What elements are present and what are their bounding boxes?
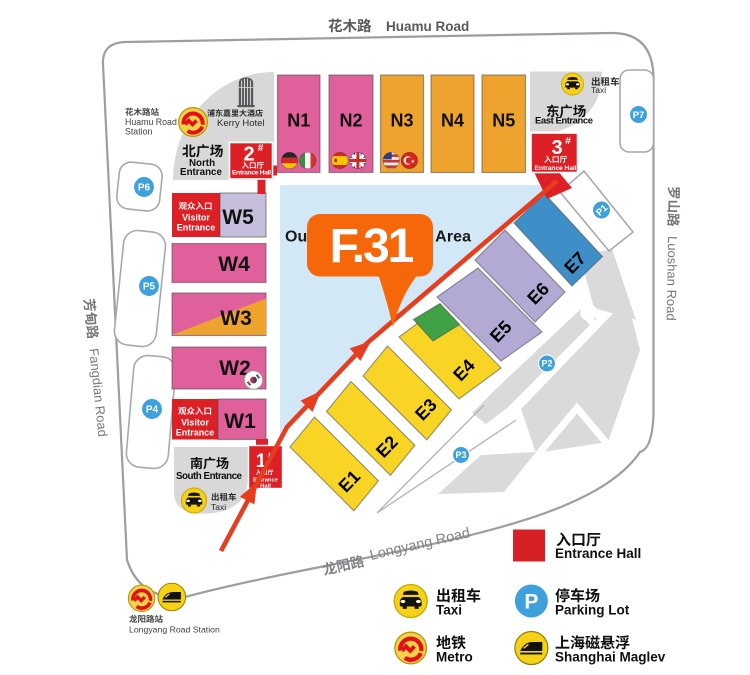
svg-text:South Entrance: South Entrance [176, 471, 243, 482]
svg-text:Hall: Hall [260, 484, 271, 490]
svg-text:P4: P4 [146, 405, 159, 416]
svg-text:Longyang Road Station: Longyang Road Station [129, 625, 220, 635]
svg-text:#: # [565, 136, 571, 147]
svg-text:Taxi: Taxi [211, 502, 226, 512]
svg-text:Luoshan Road: Luoshan Road [664, 236, 680, 321]
svg-text:F.31: F.31 [330, 220, 414, 273]
svg-text:W5: W5 [222, 206, 254, 229]
svg-text:Kerry Hotel: Kerry Hotel [217, 118, 265, 129]
svg-text:P2: P2 [541, 359, 552, 369]
svg-text:Taxi: Taxi [591, 85, 606, 95]
svg-text:2: 2 [243, 144, 254, 166]
svg-text:W3: W3 [220, 307, 252, 330]
svg-text:W4: W4 [218, 253, 250, 276]
svg-text:#: # [258, 143, 264, 154]
svg-text:Entrance Hall: Entrance Hall [232, 170, 271, 177]
svg-text:Shanghai Maglev: Shanghai Maglev [555, 650, 666, 665]
svg-text:N1: N1 [287, 111, 310, 131]
svg-text:Metro: Metro [436, 650, 473, 665]
svg-text:N5: N5 [492, 111, 515, 131]
svg-text:P6: P6 [138, 183, 151, 194]
svg-text:N4: N4 [441, 111, 464, 131]
svg-text:Huamu Road: Huamu Road [386, 19, 469, 34]
svg-text:Entrance Hall: Entrance Hall [555, 546, 641, 561]
svg-text:Visitor: Visitor [181, 418, 209, 428]
svg-text:Fangdian Road: Fangdian Road [86, 347, 110, 437]
svg-text:Entrance: Entrance [177, 223, 216, 233]
svg-text:Visitor: Visitor [182, 213, 210, 223]
svg-text:Entrance: Entrance [180, 167, 222, 178]
svg-text:P: P [524, 591, 538, 614]
svg-text:Entrance Hall: Entrance Hall [535, 165, 577, 172]
svg-text:P3: P3 [455, 450, 466, 460]
svg-text:P7: P7 [633, 110, 645, 121]
svg-text:Parking Lot: Parking Lot [555, 603, 630, 618]
svg-text:Huamu Road: Huamu Road [125, 117, 177, 127]
svg-text:N3: N3 [390, 111, 413, 131]
svg-text:P5: P5 [143, 282, 156, 293]
svg-text:3: 3 [551, 137, 562, 159]
svg-text:Station: Station [125, 127, 152, 137]
svg-text:Entrance: Entrance [176, 428, 215, 438]
svg-text:Taxi: Taxi [436, 603, 462, 618]
svg-text:East Entrance: East Entrance [535, 116, 593, 127]
svg-text:N2: N2 [339, 111, 362, 131]
svg-text:W1: W1 [224, 410, 256, 433]
